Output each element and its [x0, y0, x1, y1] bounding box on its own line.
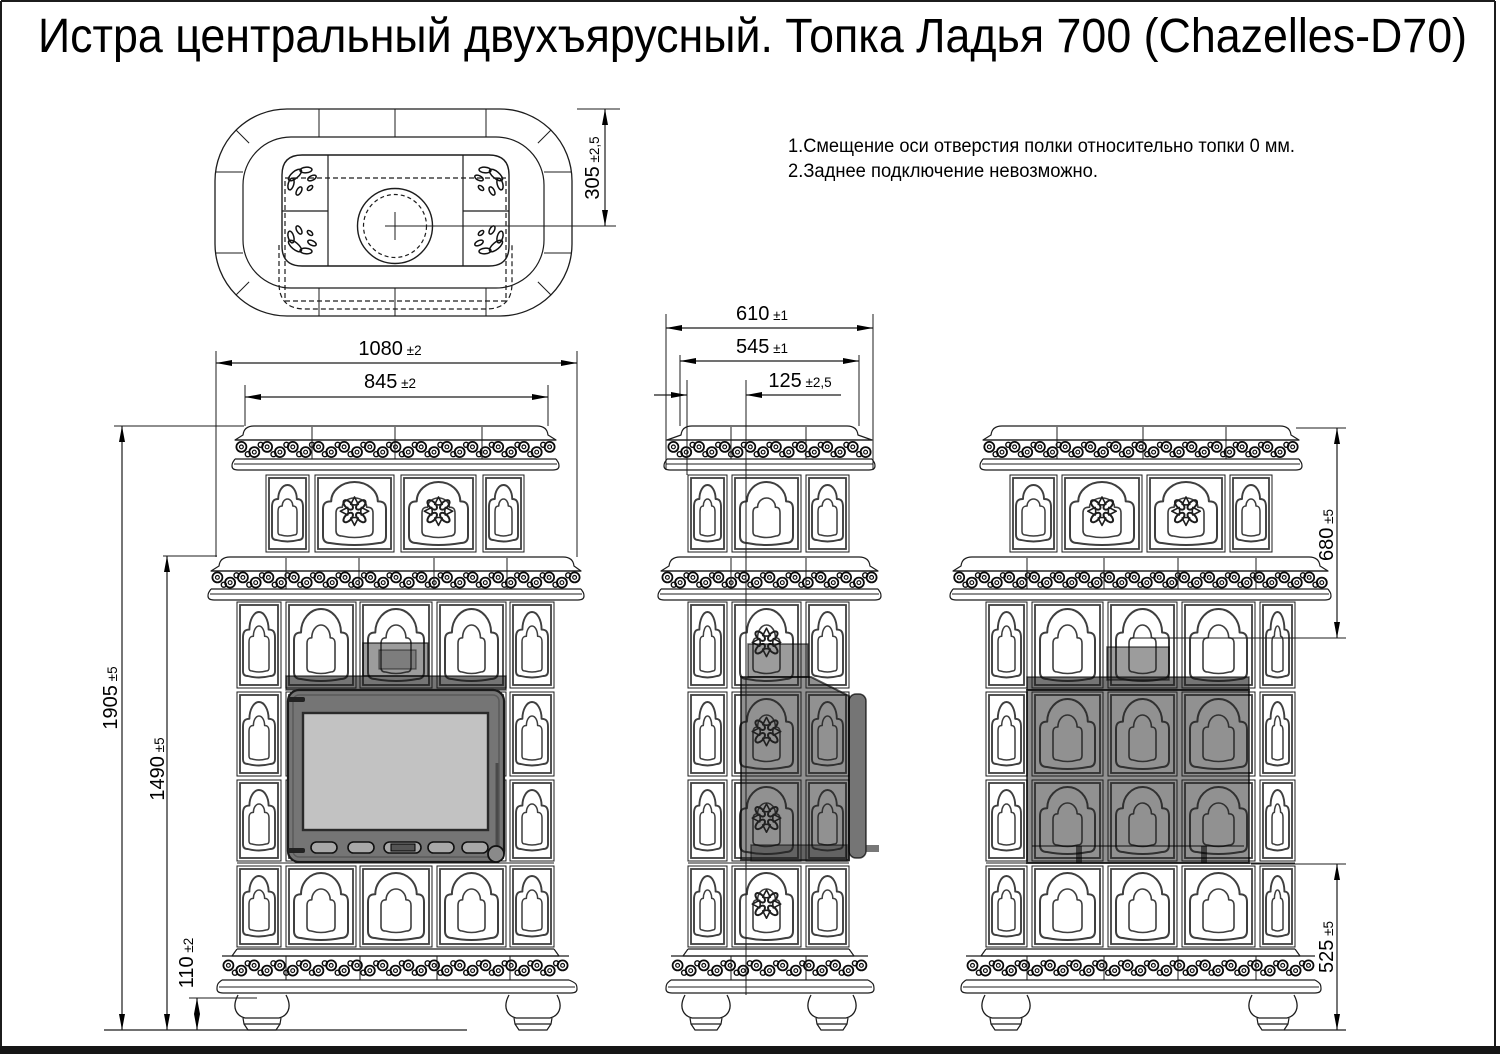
svg-text:Истра центральный двухъярусный: Истра центральный двухъярусный. Топка Ла…: [38, 10, 1467, 63]
svg-text:2.Заднее подключение невозможн: 2.Заднее подключение невозможно.: [788, 161, 1098, 182]
svg-text:1.Смещение оси отверстия полки: 1.Смещение оси отверстия полки относител…: [788, 136, 1295, 157]
